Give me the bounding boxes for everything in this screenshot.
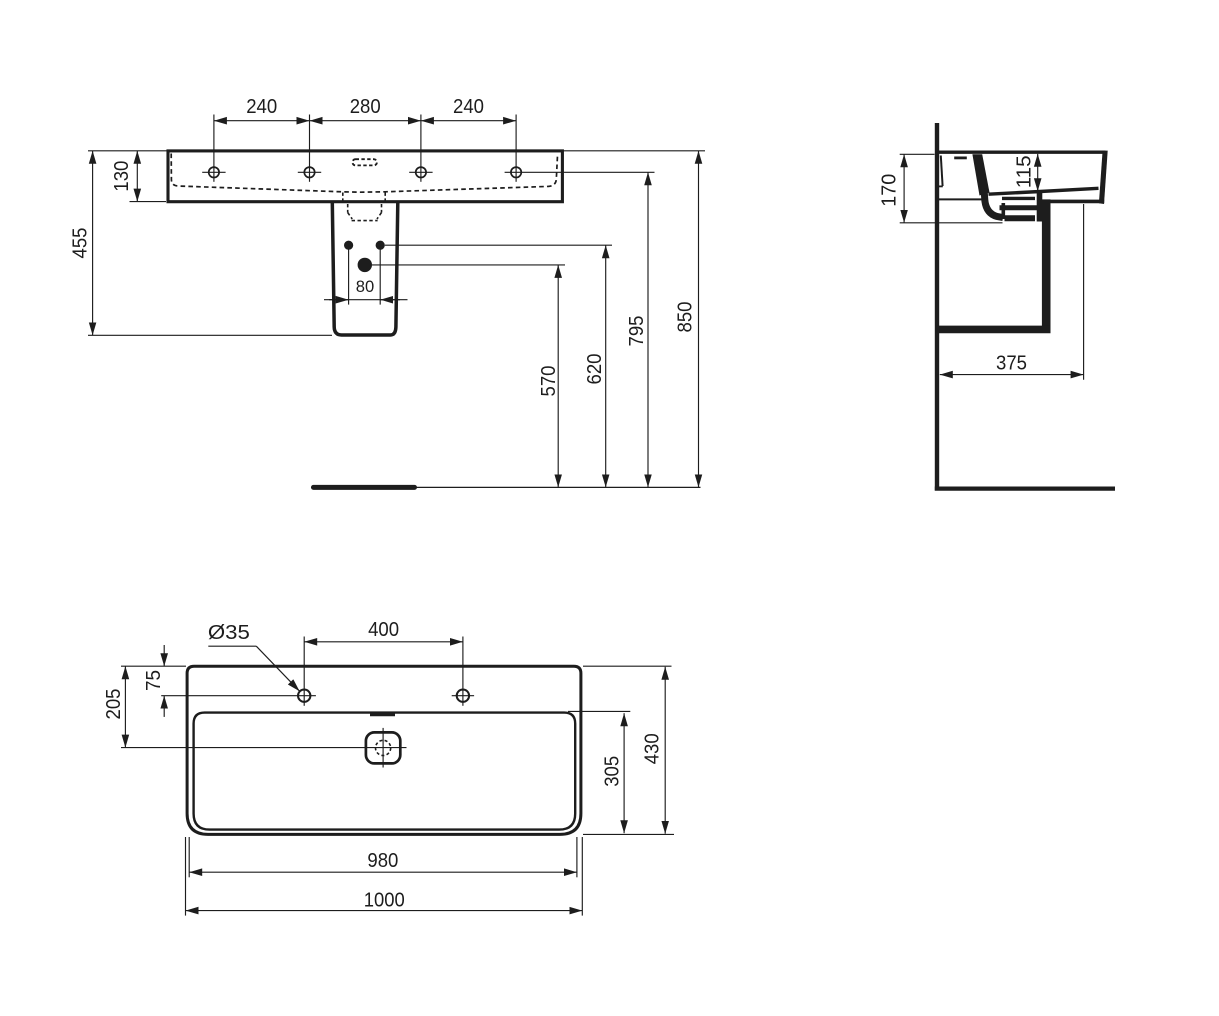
svg-text:240: 240	[453, 95, 484, 118]
svg-text:115: 115	[1013, 155, 1036, 188]
svg-text:280: 280	[350, 95, 381, 118]
svg-text:305: 305	[601, 756, 624, 787]
svg-text:240: 240	[246, 95, 277, 118]
svg-text:205: 205	[102, 689, 125, 720]
svg-text:80: 80	[356, 277, 375, 296]
svg-text:570: 570	[537, 366, 560, 397]
svg-text:980: 980	[367, 849, 398, 872]
svg-text:850: 850	[673, 302, 696, 333]
svg-text:75: 75	[142, 670, 165, 691]
svg-text:795: 795	[625, 316, 648, 347]
svg-text:455: 455	[68, 228, 91, 259]
svg-text:375: 375	[996, 351, 1027, 374]
svg-text:170: 170	[878, 174, 901, 207]
svg-text:1000: 1000	[364, 888, 405, 911]
svg-text:620: 620	[583, 354, 606, 385]
svg-text:130: 130	[110, 161, 133, 192]
svg-text:Ø35: Ø35	[208, 621, 250, 644]
svg-text:400: 400	[368, 618, 399, 641]
svg-text:430: 430	[641, 733, 664, 764]
